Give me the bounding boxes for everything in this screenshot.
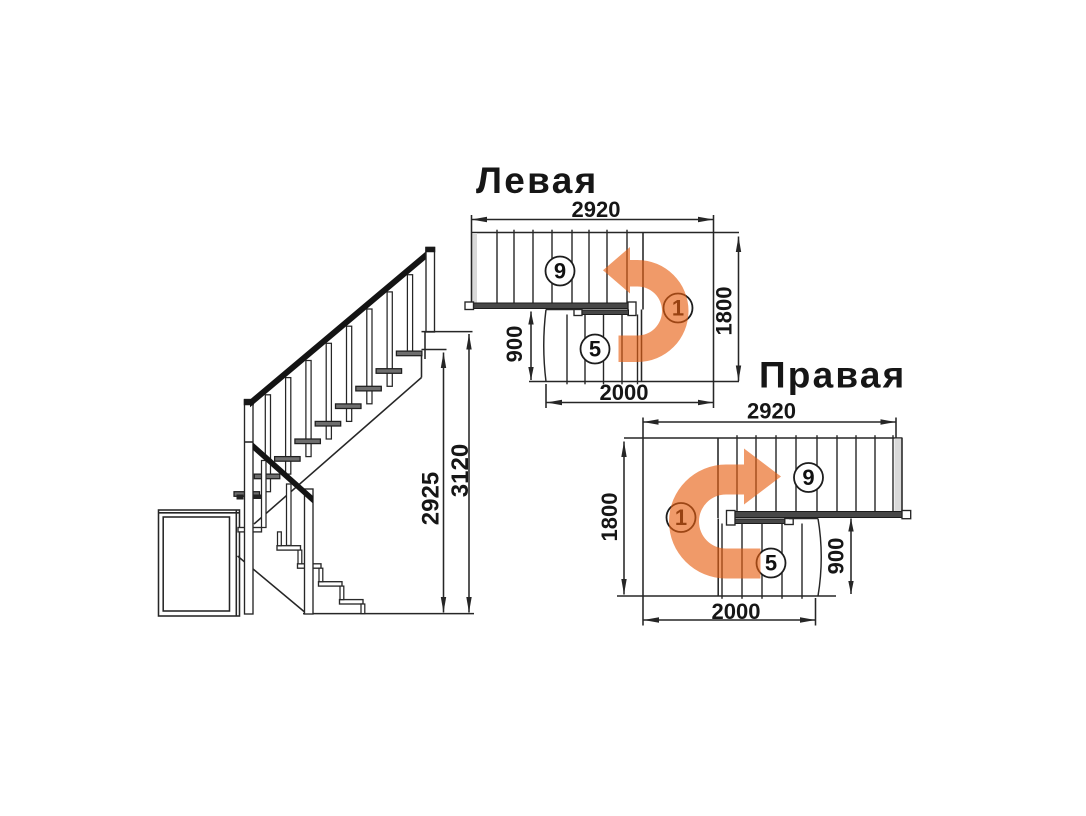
svg-text:3120: 3120 — [447, 444, 474, 497]
svg-text:900: 900 — [824, 538, 849, 575]
svg-text:900: 900 — [502, 326, 527, 363]
svg-text:2925: 2925 — [418, 472, 445, 525]
svg-text:5: 5 — [765, 551, 777, 576]
svg-text:9: 9 — [554, 259, 566, 284]
svg-text:1800: 1800 — [597, 493, 622, 542]
svg-text:Правая: Правая — [759, 355, 906, 396]
svg-text:9: 9 — [802, 465, 814, 490]
svg-text:2920: 2920 — [572, 197, 621, 222]
svg-text:1800: 1800 — [712, 287, 737, 336]
svg-text:Левая: Левая — [476, 160, 598, 201]
svg-text:5: 5 — [589, 337, 601, 362]
svg-text:2920: 2920 — [747, 399, 796, 424]
svg-text:2000: 2000 — [600, 380, 649, 405]
